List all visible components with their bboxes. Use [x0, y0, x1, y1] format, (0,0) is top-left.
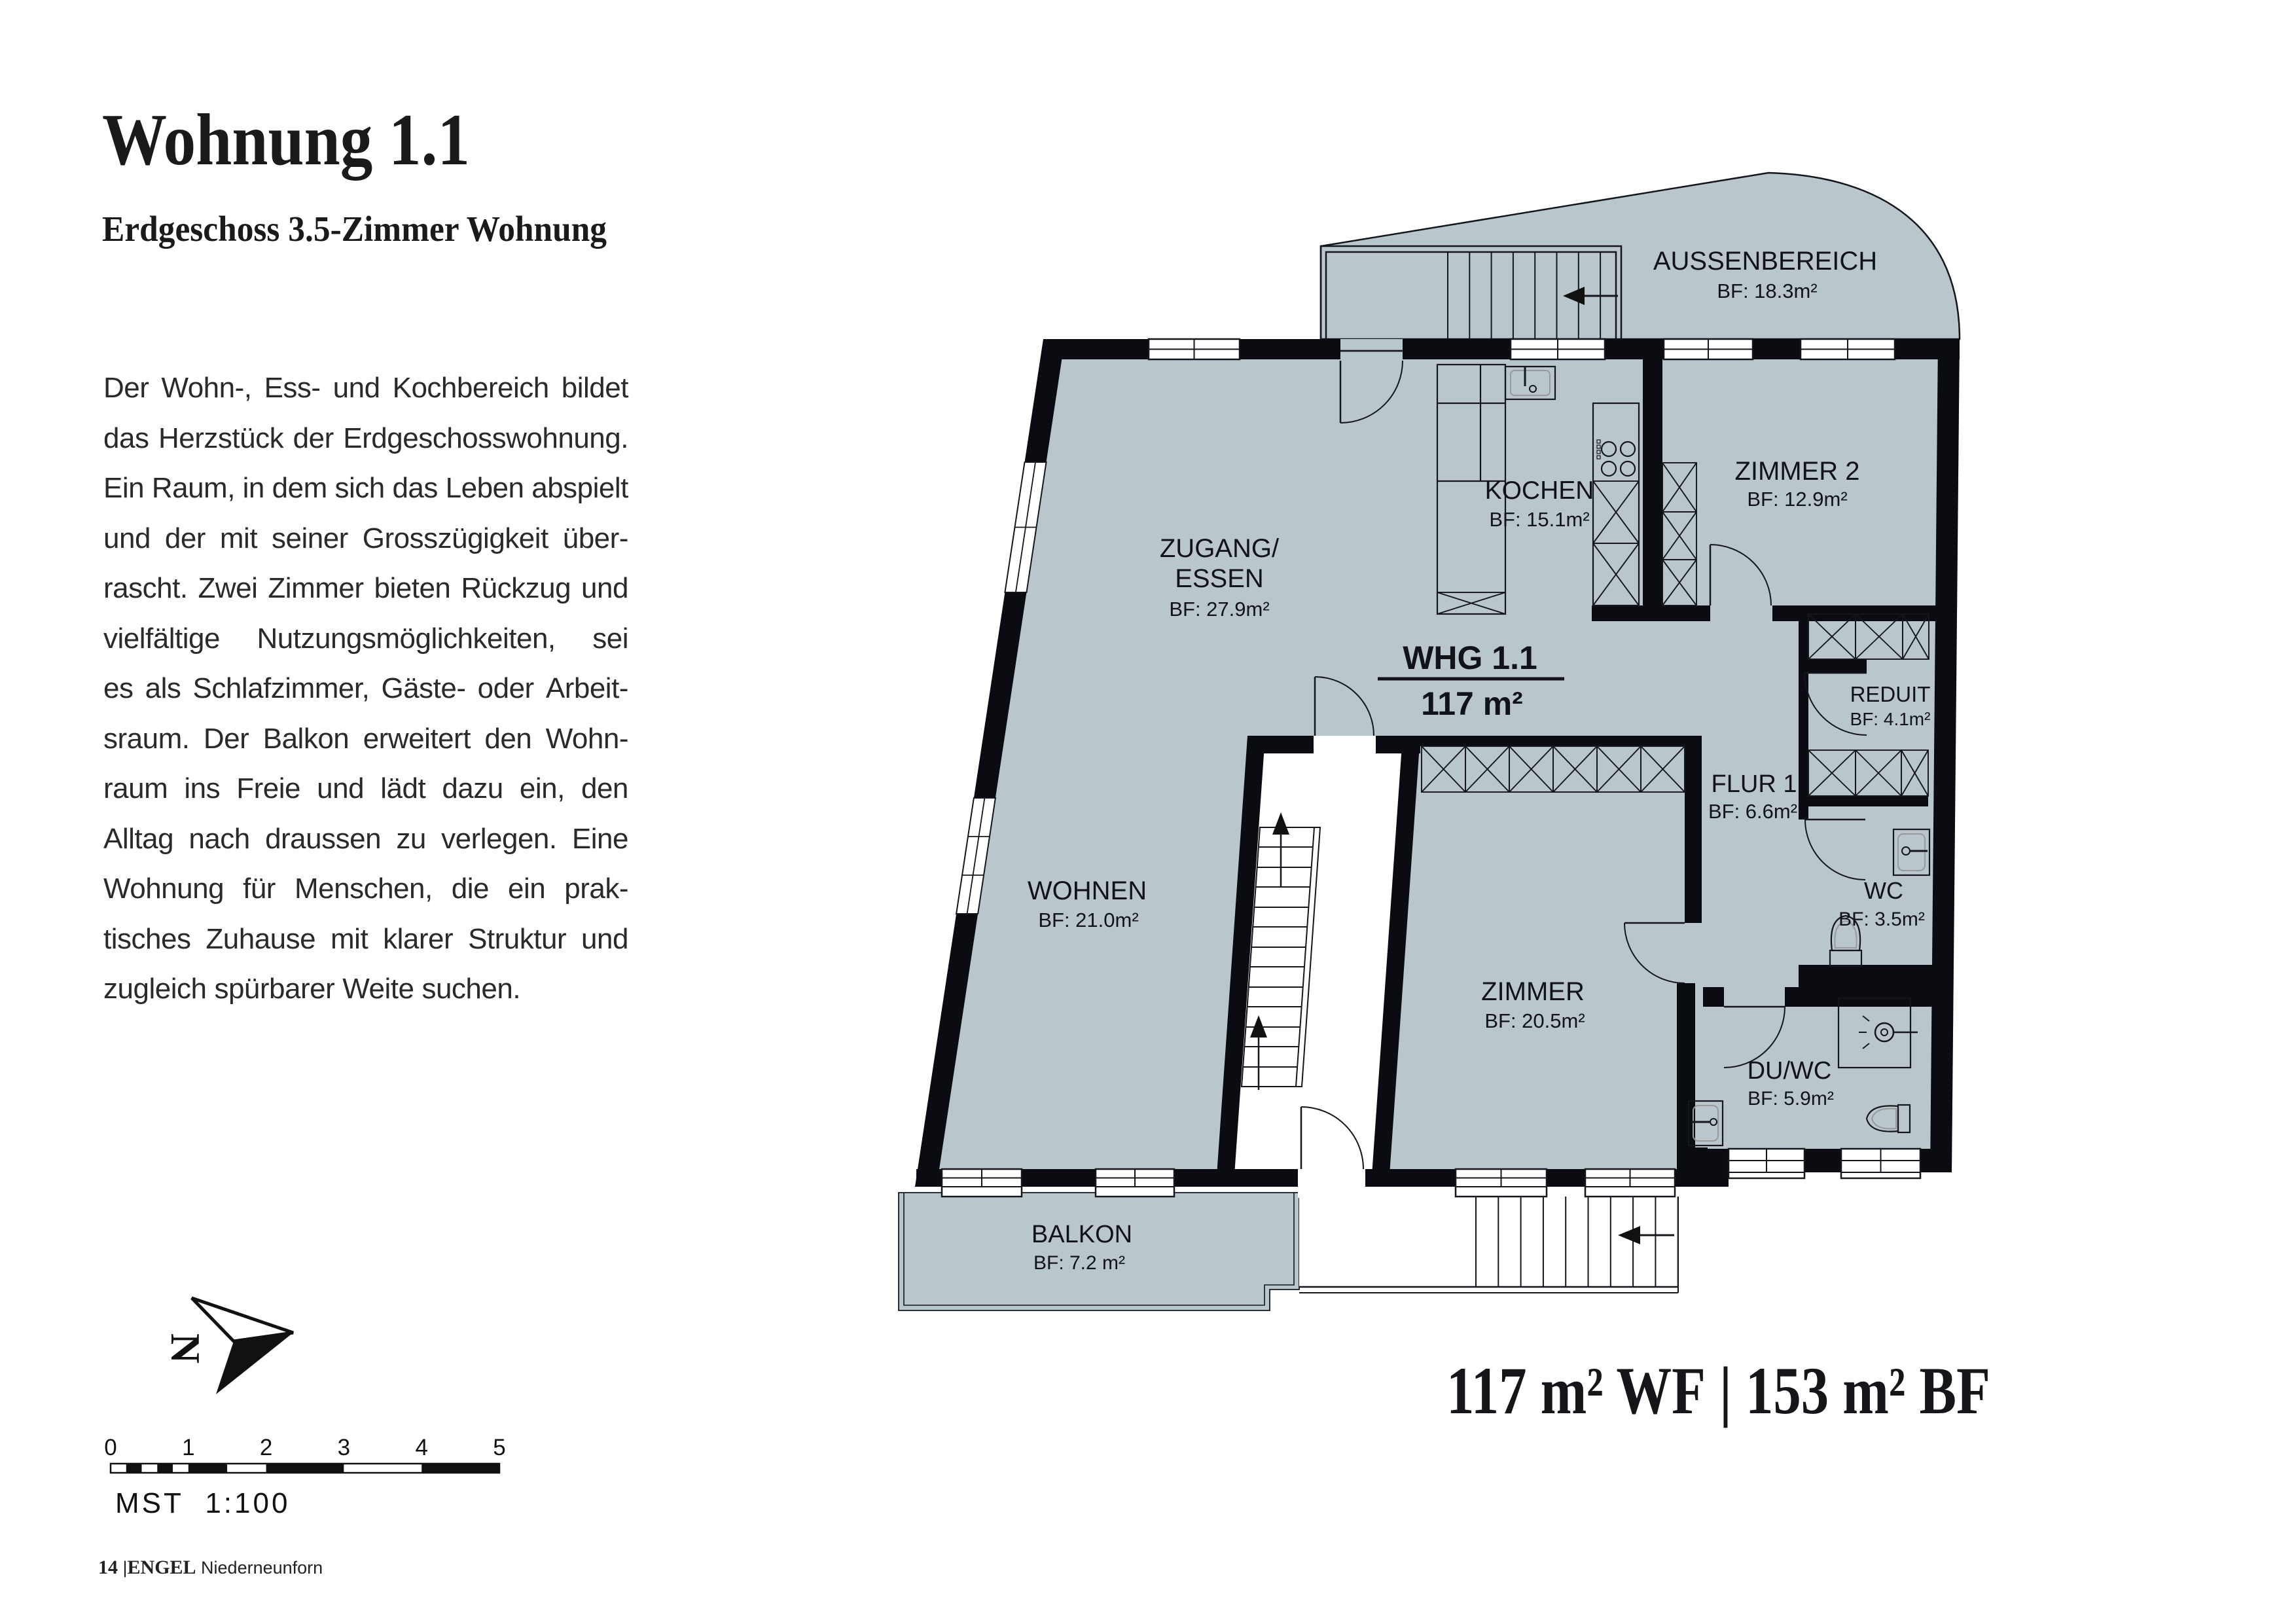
svg-text:1: 1: [182, 1435, 194, 1460]
svg-text:BF: 6.6m²: BF: 6.6m²: [1708, 800, 1797, 823]
svg-text:0: 0: [104, 1435, 117, 1460]
svg-text:2: 2: [260, 1435, 272, 1460]
svg-text:ZIMMER: ZIMMER: [1481, 977, 1585, 1006]
svg-text:BALKON: BALKON: [1031, 1221, 1132, 1248]
svg-text:BF: 21.0m²: BF: 21.0m²: [1038, 909, 1138, 931]
svg-text:BF: 18.3m²: BF: 18.3m²: [1717, 280, 1817, 302]
svg-text:3: 3: [338, 1435, 350, 1460]
svg-text:BF: 15.1m²: BF: 15.1m²: [1489, 508, 1589, 531]
svg-text:BF: 27.9m²: BF: 27.9m²: [1169, 598, 1269, 621]
svg-text:ESSEN: ESSEN: [1175, 564, 1264, 593]
svg-text:WOHNEN: WOHNEN: [1028, 876, 1147, 905]
svg-text:4: 4: [415, 1435, 427, 1460]
svg-text:AUSSENBEREICH: AUSSENBEREICH: [1653, 247, 1877, 276]
svg-text:BF: 4.1m²: BF: 4.1m²: [1850, 709, 1931, 729]
svg-text:5: 5: [493, 1435, 505, 1460]
svg-text:ZIMMER 2: ZIMMER 2: [1734, 457, 1859, 486]
svg-text:BF: 5.9m²: BF: 5.9m²: [1748, 1088, 1834, 1110]
svg-text:BF: 3.5m²: BF: 3.5m²: [1839, 909, 1925, 930]
svg-text:FLUR 1: FLUR 1: [1712, 770, 1797, 798]
svg-text:BF: 12.9m²: BF: 12.9m²: [1747, 488, 1847, 511]
svg-text:KOCHEN: KOCHEN: [1485, 477, 1594, 505]
svg-text:WC: WC: [1864, 877, 1903, 904]
svg-text:BF: 20.5m²: BF: 20.5m²: [1484, 1009, 1585, 1032]
svg-text:BF: 7.2 m²: BF: 7.2 m²: [1033, 1252, 1125, 1274]
svg-text:WHG 1.1: WHG 1.1: [1403, 640, 1537, 676]
svg-text:N: N: [162, 1333, 209, 1363]
svg-text:ZUGANG/: ZUGANG/: [1160, 534, 1280, 563]
svg-text:REDUIT: REDUIT: [1850, 682, 1931, 706]
svg-text:117 m²: 117 m²: [1421, 685, 1523, 722]
svg-text:DU/WC: DU/WC: [1748, 1057, 1832, 1085]
